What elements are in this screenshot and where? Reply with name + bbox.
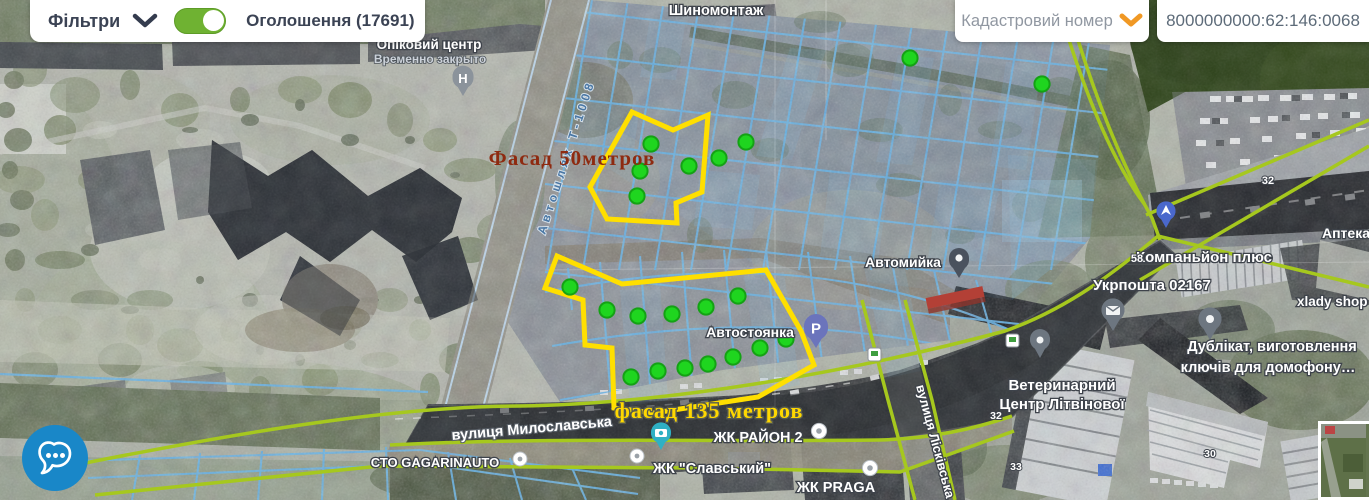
svg-text:xlady shop: xlady shop [1297,294,1368,309]
svg-text:ЖК РАЙОН 2: ЖК РАЙОН 2 [712,428,802,446]
svg-text:Автомийка: Автомийка [865,254,941,270]
svg-text:Фасад 50метров: Фасад 50метров [489,146,656,170]
svg-text:Дублікат, виготовлення: Дублікат, виготовлення [1187,339,1357,355]
svg-text:ключів для домофону…: ключів для домофону… [1181,360,1356,376]
svg-text:Шиномонтаж: Шиномонтаж [669,3,764,19]
svg-text:СТО GAGARINAUTO: СТО GAGARINAUTO [371,455,499,470]
svg-text:ЖК PRAGA: ЖК PRAGA [796,480,876,496]
svg-text:фасад 135 метров: фасад 135 метров [615,398,804,423]
svg-text:Укрпошта 02167: Укрпошта 02167 [1093,277,1211,294]
svg-text:Аптека: Аптека [1322,225,1369,241]
svg-text:30: 30 [1204,448,1216,460]
svg-text:Временно закрыто: Временно закрыто [374,52,486,66]
svg-text:Ветеринарний: Ветеринарний [1008,377,1115,394]
svg-text:H: H [458,71,467,86]
svg-text:Центр Літвінової: Центр Літвінової [999,396,1125,413]
svg-text:P: P [811,321,821,338]
svg-text:ЖК "Славський": ЖК "Славський" [652,461,771,477]
svg-text:Компаньйон плюс: Компаньйон плюс [1136,249,1272,266]
svg-text:Автостоянка: Автостоянка [706,324,794,340]
svg-text:32: 32 [1262,175,1274,187]
svg-text:33: 33 [1010,461,1022,473]
svg-text:58: 58 [1131,253,1143,265]
